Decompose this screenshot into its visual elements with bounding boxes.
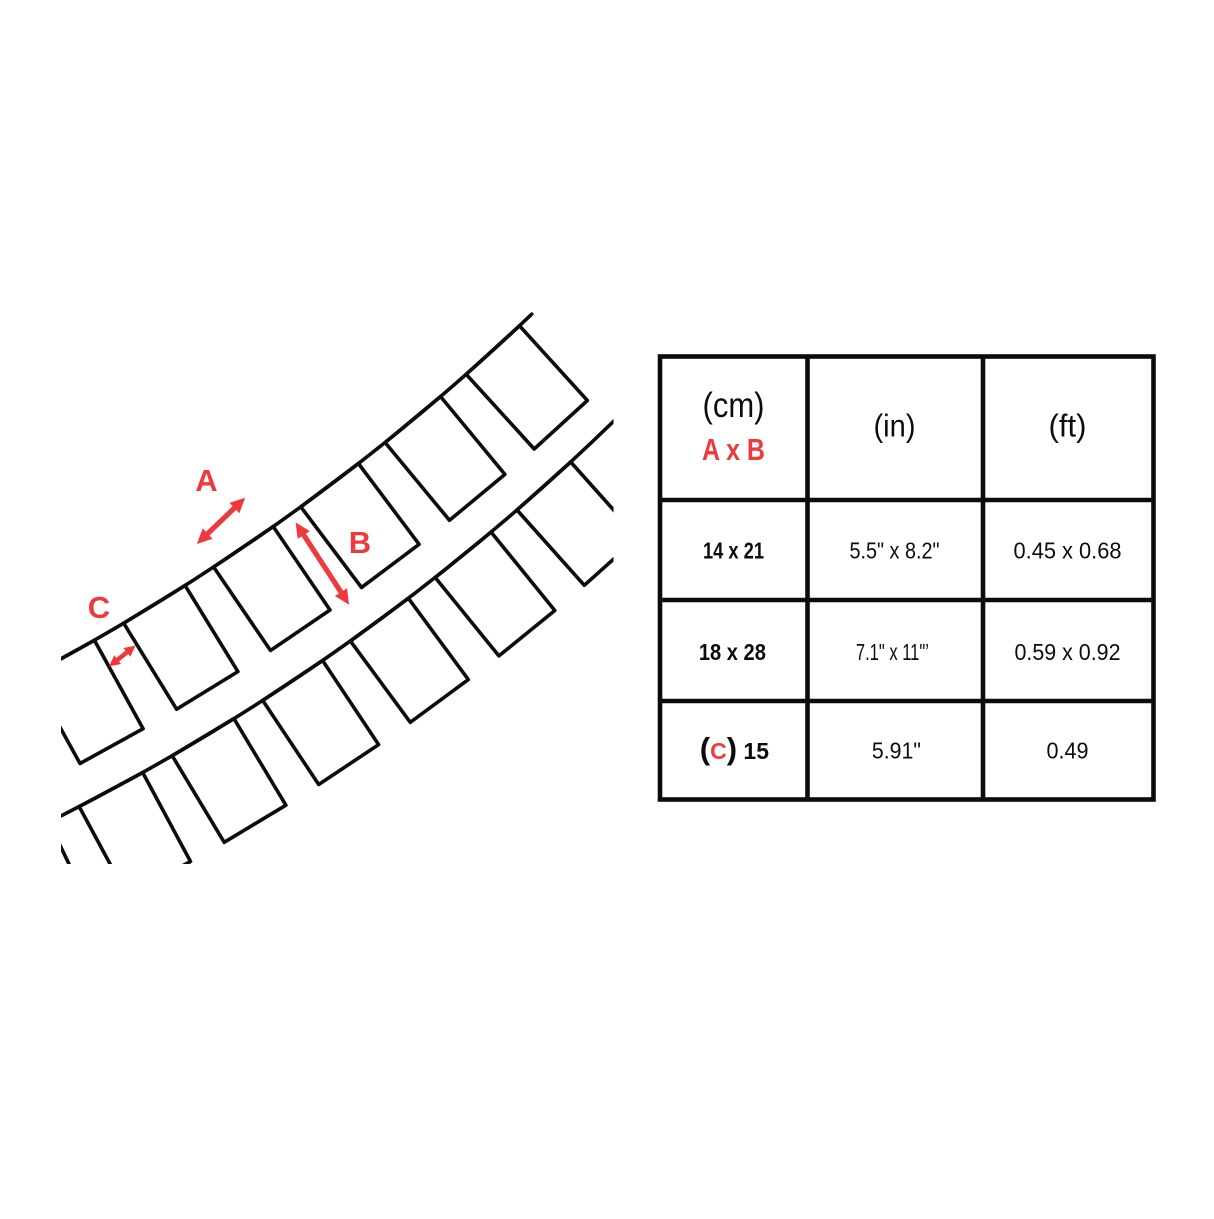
svg-text:(in): (in) [874,408,916,444]
svg-text:14 x 21: 14 x 21 [703,538,764,564]
svg-text:A x B: A x B [702,432,765,467]
svg-text:5.5" x 8.2": 5.5" x 8.2" [850,538,940,564]
svg-text:0.59 x 0.92: 0.59 x 0.92 [1015,639,1121,665]
svg-text:(ft): (ft) [1049,408,1087,444]
svg-text:C: C [88,590,110,625]
svg-text:B: B [349,525,371,560]
svg-text:18 x 28: 18 x 28 [699,639,766,665]
svg-text:0.45 x 0.68: 0.45 x 0.68 [1014,538,1122,564]
svg-text:0.49: 0.49 [1047,738,1089,764]
svg-text:7.1" x 11"’: 7.1" x 11"’ [856,639,929,665]
svg-text:(cm): (cm) [703,386,765,425]
svg-text:5.91": 5.91" [872,738,921,764]
svg-text:A: A [195,463,217,498]
